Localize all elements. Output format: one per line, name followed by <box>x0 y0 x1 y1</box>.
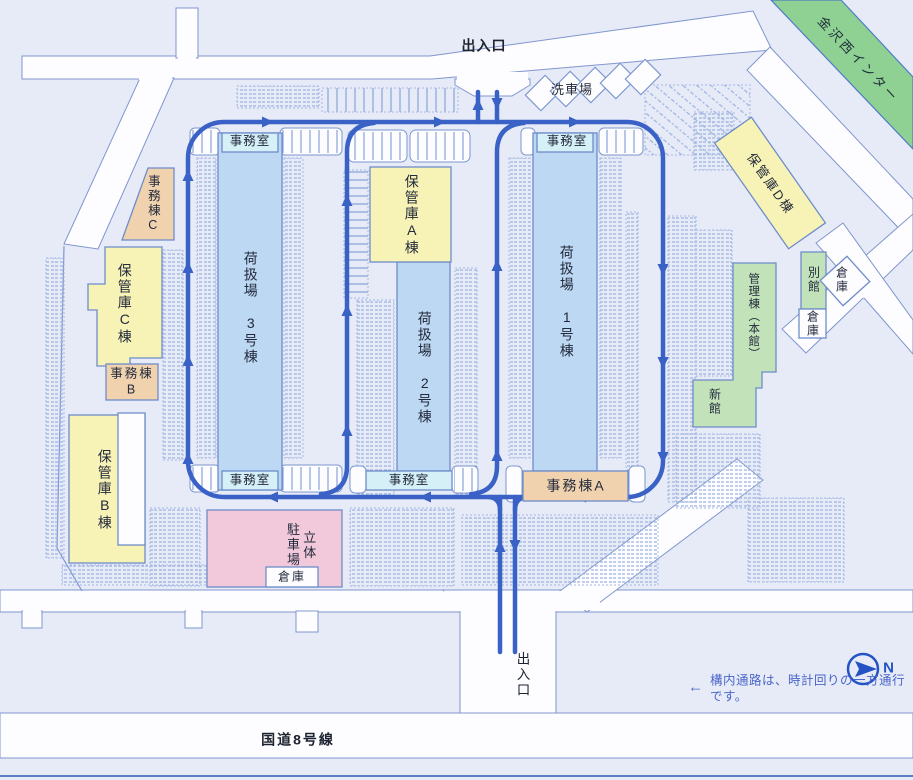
building-handling-3 <box>218 133 282 490</box>
road-driveway-stub-1 <box>22 611 42 628</box>
site-map-canvas <box>0 0 913 780</box>
building-office-b <box>106 364 158 400</box>
office-room-h2-bottom <box>366 471 452 490</box>
building-handling-2 <box>397 262 450 471</box>
road-route8-band <box>0 713 913 758</box>
road-driveway-stub-2 <box>185 611 202 628</box>
building-office-a <box>523 471 628 501</box>
office-room-h3-top <box>222 133 278 152</box>
site-map: 出入口 洗車場 事務室 事務室 事務室 事務室 荷扱場 3号棟 荷扱場 2号棟 … <box>0 0 913 780</box>
road-top-stub <box>176 8 198 58</box>
building-storage-a <box>370 167 451 262</box>
building-warehouse-parking <box>266 567 318 587</box>
office-room-h3-bottom <box>222 471 278 490</box>
building-handling-1 <box>533 133 597 471</box>
storage-b-dock <box>118 413 145 545</box>
guard-booth <box>296 611 318 632</box>
building-warehouse-lower <box>799 309 826 338</box>
compass <box>848 654 878 684</box>
office-room-h1-top <box>537 133 593 152</box>
